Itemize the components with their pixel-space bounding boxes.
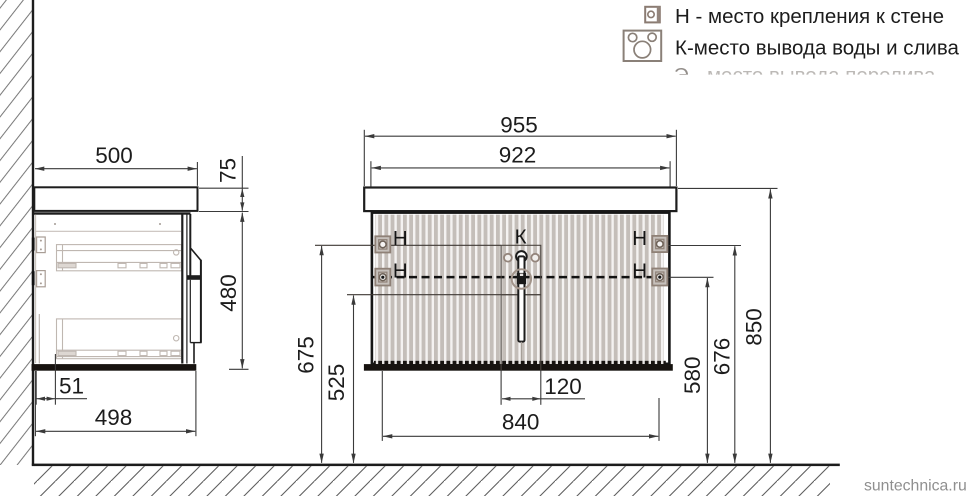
svg-text:К: К bbox=[515, 225, 527, 248]
svg-text:525: 525 bbox=[324, 364, 349, 402]
svg-text:580: 580 bbox=[680, 356, 705, 394]
svg-text:suntechnica.ru: suntechnica.ru bbox=[864, 477, 967, 494]
svg-text:922: 922 bbox=[499, 143, 537, 168]
svg-text:676: 676 bbox=[709, 338, 734, 376]
svg-text:Н: Н bbox=[393, 260, 408, 283]
svg-text:850: 850 bbox=[742, 308, 767, 346]
svg-text:498: 498 bbox=[95, 405, 133, 430]
svg-text:Н - место крепления к стене: Н - место крепления к стене bbox=[675, 5, 944, 28]
svg-text:120: 120 bbox=[544, 374, 582, 399]
svg-text:75: 75 bbox=[215, 158, 240, 183]
svg-text:500: 500 bbox=[95, 143, 133, 168]
svg-text:675: 675 bbox=[294, 336, 319, 374]
svg-text:Н: Н bbox=[393, 227, 408, 250]
svg-text:Э - место вывода перелива: Э - место вывода перелива bbox=[674, 64, 936, 87]
svg-text:Н: Н bbox=[632, 227, 647, 250]
svg-text:480: 480 bbox=[216, 274, 241, 312]
svg-text:955: 955 bbox=[500, 113, 538, 138]
svg-text:К-место вывода воды и слива: К-место вывода воды и слива bbox=[675, 37, 960, 60]
svg-text:51: 51 bbox=[59, 374, 84, 399]
svg-text:Н: Н bbox=[632, 260, 647, 283]
svg-text:840: 840 bbox=[502, 410, 540, 435]
